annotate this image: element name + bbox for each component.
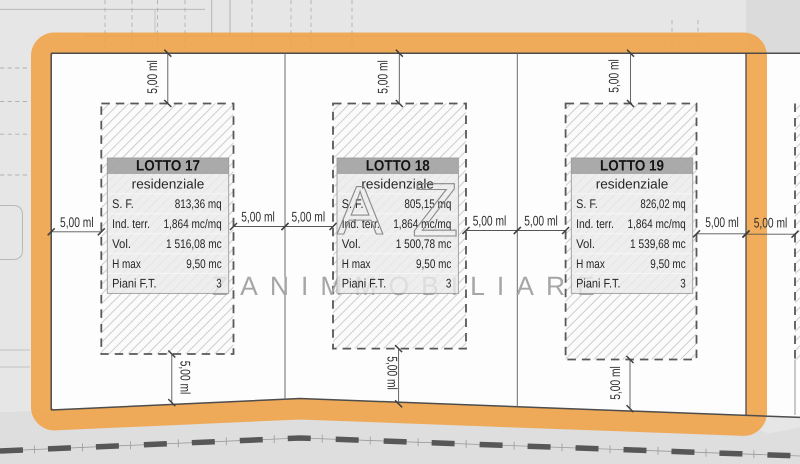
svg-text:1 539,68 mc: 1 539,68 mc — [630, 237, 686, 251]
svg-text:9,50 mc: 9,50 mc — [650, 257, 685, 271]
svg-text:813,36 mq: 813,36 mq — [175, 197, 222, 211]
svg-text:5,00 ml: 5,00 ml — [292, 209, 326, 225]
svg-text:826,02 mq: 826,02 mq — [640, 197, 685, 211]
svg-text:Ind. terr.: Ind. terr. — [576, 217, 614, 231]
svg-text:H max: H max — [342, 257, 371, 271]
svg-text:5,00 ml: 5,00 ml — [144, 60, 160, 94]
svg-text:residenziale: residenziale — [596, 177, 669, 192]
svg-text:9,50 mc: 9,50 mc — [416, 257, 451, 271]
svg-text:S. F.: S. F. — [112, 197, 134, 211]
svg-text:S. F.: S. F. — [576, 197, 598, 211]
svg-text:5,00 ml: 5,00 ml — [384, 356, 400, 390]
svg-text:5,00 ml: 5,00 ml — [524, 213, 558, 229]
svg-text:3: 3 — [680, 277, 686, 291]
svg-text:1 516,08 mc: 1 516,08 mc — [166, 237, 222, 251]
svg-text:Piani F.T.: Piani F.T. — [576, 277, 620, 291]
svg-text:3: 3 — [446, 277, 452, 291]
svg-text:3: 3 — [216, 277, 222, 291]
svg-text:H max: H max — [576, 257, 605, 271]
svg-text:1,864 mc/mq: 1,864 mc/mq — [164, 217, 222, 231]
svg-text:Piani F.T.: Piani F.T. — [112, 277, 156, 291]
svg-text:A: A — [337, 172, 383, 249]
svg-text:LOTTO 19: LOTTO 19 — [600, 157, 664, 174]
svg-text:5,00 ml: 5,00 ml — [177, 361, 193, 395]
svg-text:Ind. terr.: Ind. terr. — [112, 217, 150, 231]
svg-text:Piani F.T.: Piani F.T. — [342, 277, 386, 291]
svg-text:9,50 mc: 9,50 mc — [186, 257, 221, 271]
svg-text:1,864 mc/mq: 1,864 mc/mq — [628, 217, 686, 231]
svg-text:Z: Z — [412, 168, 458, 253]
svg-text:LOTTO 17: LOTTO 17 — [136, 157, 200, 174]
svg-text:Vol.: Vol. — [112, 237, 131, 251]
svg-text:5,00 ml: 5,00 ml — [754, 215, 788, 231]
svg-text:5,00 ml: 5,00 ml — [607, 366, 623, 400]
svg-text:residenziale: residenziale — [132, 177, 205, 192]
svg-text:5,00 ml: 5,00 ml — [606, 59, 622, 93]
svg-text:5,00 ml: 5,00 ml — [60, 214, 94, 230]
svg-text:5,00 ml: 5,00 ml — [473, 213, 507, 229]
svg-text:5,00 ml: 5,00 ml — [375, 60, 391, 94]
svg-text:H max: H max — [112, 257, 141, 271]
svg-text:5,00 ml: 5,00 ml — [241, 209, 275, 225]
svg-text:Vol.: Vol. — [576, 237, 595, 251]
svg-text:5,00 ml: 5,00 ml — [705, 214, 739, 230]
